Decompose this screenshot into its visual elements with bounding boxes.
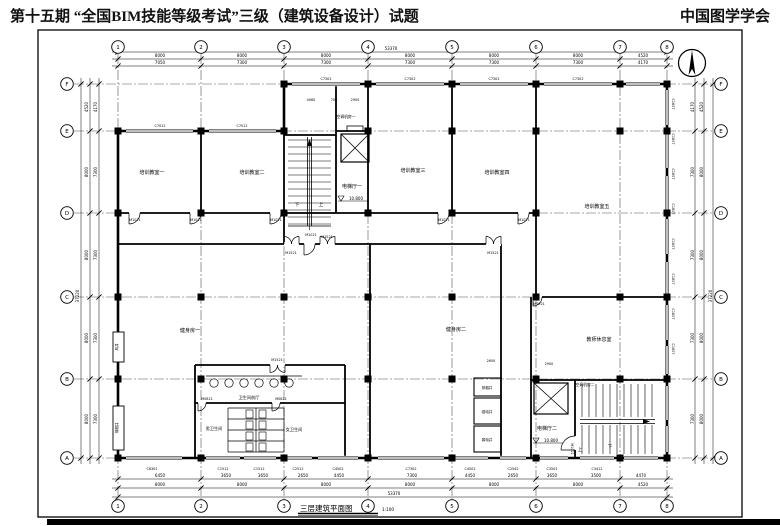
column: [281, 455, 288, 462]
dim-label: 7300: [93, 413, 98, 424]
door-tag: M1521: [487, 251, 499, 255]
dim-interior-label: 2900: [545, 362, 554, 366]
dim-label: 7300: [690, 332, 695, 343]
column: [449, 81, 456, 88]
grid-bubble-label: 5: [450, 504, 454, 510]
toilet-fixture: [259, 432, 266, 440]
window-tag: C1807: [671, 309, 675, 320]
dim-label: 7300: [93, 166, 98, 177]
column: [617, 128, 624, 135]
window-tag: C7302: [321, 77, 332, 81]
window-tag: C7302: [489, 77, 500, 81]
door-tag: M1021: [518, 218, 530, 222]
dim-label: 7300: [690, 249, 695, 260]
column: [115, 210, 122, 217]
column: [281, 128, 288, 135]
dim-label: 7300: [93, 332, 98, 343]
dim-label: 8000: [84, 166, 89, 177]
dim-label: 8000: [405, 53, 416, 58]
room-label: 弱电井: [482, 437, 493, 442]
dim-label: 4170: [638, 60, 649, 65]
room-label: 培训教室五: [584, 203, 609, 210]
grid-bubble-label: 5: [450, 45, 454, 51]
stair-direction-label: 下: [295, 202, 300, 208]
sink: [285, 379, 293, 387]
column: [115, 294, 122, 301]
dim-label: 4520: [699, 101, 704, 112]
dim-label: 8000: [84, 413, 89, 424]
window-tag: C1807: [671, 134, 675, 145]
toilet-fixture: [246, 421, 253, 429]
column: [198, 376, 205, 383]
grid-bubble-label: 3: [282, 504, 286, 510]
door-tag: M1021: [305, 233, 317, 237]
toilet-fixture: [259, 421, 266, 429]
dim-label: 8000: [573, 53, 584, 58]
plan-scale: 1:100: [382, 507, 394, 512]
grid-bubble-label: 1: [116, 45, 120, 51]
column: [617, 81, 624, 88]
column: [533, 128, 540, 135]
dim-label: 7300: [407, 473, 418, 478]
window-tag: C2512: [293, 467, 304, 471]
window-tag: C7302: [406, 467, 417, 471]
toilet-fixture: [246, 432, 253, 440]
dim-label: 7300: [93, 249, 98, 260]
room-label: 健身房二: [446, 326, 466, 333]
dim-label: 8000: [84, 332, 89, 343]
dim-label: 4170: [690, 101, 695, 112]
dim-interior-label: 2900: [351, 98, 360, 102]
floor-plan: 三层建筑平面图 1:100 1122334455667788FFEEDDCCBB…: [0, 0, 780, 526]
dim-label: 7300: [405, 60, 416, 65]
column: [617, 294, 624, 301]
dim-label: 8000: [699, 413, 704, 424]
dim-label: 7300: [237, 60, 248, 65]
dim-label: 6450: [155, 473, 166, 478]
window-tag: C1807: [671, 344, 675, 355]
stair-direction-label: 下: [608, 444, 613, 450]
sink: [210, 379, 218, 387]
door-tag: M0821: [201, 397, 213, 401]
grid-bubble-label: 7: [618, 45, 622, 51]
column: [281, 376, 288, 383]
room-label: 培训教室三: [400, 167, 425, 174]
dim-label: 8000: [321, 53, 332, 58]
column: [449, 455, 456, 462]
grid-bubble-label: E: [719, 129, 723, 135]
door-tag: M1021: [438, 218, 450, 222]
column: [198, 128, 205, 135]
grid-bubble-label: F: [65, 82, 68, 88]
dim-label: 8000: [573, 482, 584, 487]
grid-bubble-label: 2: [199, 45, 203, 51]
column: [365, 455, 372, 462]
sink: [225, 379, 233, 387]
dim-label: 7300: [573, 60, 584, 65]
dim-label: 8000: [405, 482, 416, 487]
column: [533, 294, 540, 301]
grid-bubble-label: C: [65, 295, 69, 301]
door-gap: [272, 401, 280, 405]
room-label: 男卫生间: [206, 425, 223, 432]
room-label: 女卫生间: [286, 426, 303, 433]
dim-label: 7300: [690, 166, 695, 177]
room-label: 健身房一: [180, 327, 200, 334]
column: [365, 294, 372, 301]
column: [664, 376, 671, 383]
room-label: 卫生间前厅: [239, 394, 260, 401]
toilet-fixture: [246, 410, 253, 418]
column: [617, 455, 624, 462]
level-marker-icon: [338, 196, 344, 201]
level-value: 10.800: [544, 438, 558, 443]
door-tag: M1521: [321, 235, 333, 239]
dim-interior-label: 2650: [487, 359, 496, 363]
door-gap: [198, 401, 206, 405]
grid-bubble-label: 8: [665, 504, 669, 510]
column: [198, 455, 205, 462]
door-tag: M1521: [285, 251, 297, 255]
grid-bubble-label: 7: [618, 504, 622, 510]
dim-label: 8000: [699, 166, 704, 177]
grid-bubble-label: D: [719, 211, 723, 217]
dim-label: 4520: [638, 482, 649, 487]
column: [365, 210, 372, 217]
dim-label: 3500: [591, 473, 602, 478]
room-label: 空调机房一: [337, 114, 356, 119]
plan-geometry: 1122334455667788FFEEDDCCBBAA培训教室一培训教室二培训…: [61, 41, 728, 513]
window-tag: C3412: [592, 467, 603, 471]
column: [365, 81, 372, 88]
dim-label: 8000: [321, 482, 332, 487]
window-tag: C1807: [671, 99, 675, 110]
dim-label: 4520: [638, 53, 649, 58]
grid-bubble-label: 8: [665, 45, 669, 51]
column: [281, 81, 288, 88]
window-tag: C6302: [147, 467, 158, 471]
window-tag: C2542: [508, 467, 519, 471]
room-label: 培训教室四: [484, 169, 509, 176]
dim-label: 7050: [155, 60, 166, 65]
dim-total-label: 37220: [75, 289, 80, 302]
column: [664, 128, 671, 135]
grid-bubble-label: 4: [366, 504, 370, 510]
dim-label: 2650: [508, 473, 519, 478]
dim-interior-label: 700: [331, 98, 337, 102]
column: [533, 376, 540, 383]
door-tag: M1521: [271, 358, 283, 362]
room-label: 培训教室二: [239, 169, 264, 176]
window-tag: C7302: [573, 77, 584, 81]
dim-label: 7300: [690, 413, 695, 424]
titleblock-bar: [47, 519, 780, 525]
grid-bubble-label: 6: [534, 504, 538, 510]
door-gap: [438, 211, 449, 215]
door-gap: [270, 211, 281, 215]
column: [115, 376, 122, 383]
level-value: 10.800: [349, 196, 363, 201]
grid-bubble-label: B: [719, 377, 723, 383]
dim-label: 4450: [465, 473, 476, 478]
sheet-frame: [38, 30, 742, 517]
window-tag: C4502: [465, 467, 476, 471]
dim-label: 3650: [547, 473, 558, 478]
dim-label: 7300: [321, 60, 332, 65]
window-tag: C7012: [237, 124, 248, 128]
dim-label: 8000: [237, 482, 248, 487]
column: [281, 210, 288, 217]
stair-direction-label: 上: [578, 446, 583, 453]
dim-interior-label: 4060: [307, 98, 316, 102]
dim-total-label: 53370: [385, 46, 398, 51]
dim-label: 8000: [84, 249, 89, 260]
room-label: 电梯厅二: [537, 425, 557, 432]
column: [449, 376, 456, 383]
column: [198, 294, 205, 301]
column: [449, 294, 456, 301]
window-tag: C1512: [218, 467, 229, 471]
door-tag: M1021: [270, 218, 282, 222]
column: [281, 294, 288, 301]
north-arrow-icon: [679, 50, 706, 77]
drawing-sheet: 第十五期 “全国BIM技能等级考试”三级（建筑设备设计）试题 中国图学学会 三层…: [0, 0, 780, 526]
window-tag: C4502: [333, 467, 344, 471]
column: [365, 376, 372, 383]
dim-label: 8000: [155, 482, 166, 487]
dim-label: 2650: [298, 473, 309, 478]
room-label: 空调机房二: [576, 382, 595, 387]
window-tag: C1512: [254, 467, 265, 471]
window-tag: C1807: [671, 169, 675, 180]
grid-bubble-label: 1: [116, 504, 120, 510]
grid-bubble-label: 6: [534, 45, 538, 51]
column: [617, 376, 624, 383]
room-label: 排烟井: [114, 422, 119, 433]
column: [198, 210, 205, 217]
room-label: 电梯厅一: [342, 183, 362, 190]
column: [115, 128, 122, 135]
window-tag: C1807: [671, 239, 675, 250]
door-tag: M1021: [129, 218, 141, 222]
dim-label: 8000: [155, 53, 166, 58]
room-label: 教师休息室: [586, 336, 611, 343]
stair-direction-label: 上: [319, 201, 324, 208]
dim-label: 4450: [334, 473, 345, 478]
toilet-fixture: [259, 410, 266, 418]
window-tag: C7302: [405, 77, 416, 81]
door-gap: [129, 211, 140, 215]
grid-bubble-label: 2: [199, 504, 203, 510]
dim-label: 4470: [636, 473, 647, 478]
grid-bubble-label: C: [719, 295, 723, 301]
room-label: 排烟井: [482, 385, 493, 390]
dim-total-label: 37220: [708, 289, 713, 302]
dim-label: 8000: [699, 332, 704, 343]
grid-bubble-label: F: [719, 82, 722, 88]
door-gap: [518, 211, 529, 215]
dim-label: 8000: [237, 53, 248, 58]
column: [664, 455, 671, 462]
room-label: 风井: [114, 343, 119, 351]
window-tag: C1807: [671, 274, 675, 285]
window-tag: C7012: [155, 124, 166, 128]
toilet-fixture: [259, 443, 266, 451]
sink: [240, 379, 248, 387]
grid-bubble-label: A: [65, 456, 69, 462]
dim-label: 8000: [699, 249, 704, 260]
column: [664, 210, 671, 217]
dim-label: 8000: [489, 53, 500, 58]
door-tag: M1021: [570, 443, 574, 455]
dim-total-label: 53370: [388, 491, 401, 496]
toilet-fixture: [246, 443, 253, 451]
dim-label: 7300: [489, 60, 500, 65]
column: [533, 81, 540, 88]
window-tag: C1807: [671, 204, 675, 215]
grid-bubble-label: E: [65, 129, 69, 135]
door-tag: M1021: [190, 218, 202, 222]
grid-bubble-label: 4: [366, 45, 370, 51]
door-gap: [304, 242, 315, 246]
plan-title: 三层建筑平面图: [300, 503, 353, 513]
column: [533, 455, 540, 462]
room-label: 强电井: [482, 409, 493, 414]
column: [449, 128, 456, 135]
grid-bubble-label: 3: [282, 45, 286, 51]
grid-bubble-label: A: [719, 456, 723, 462]
dim-label: 4520: [84, 101, 89, 112]
dim-label: 8000: [489, 482, 500, 487]
sink: [270, 379, 278, 387]
grid-bubble-label: B: [65, 377, 69, 383]
dim-label: 3650: [258, 473, 269, 478]
door-tag: M0821: [275, 397, 287, 401]
door-tag: M0921: [533, 302, 545, 306]
column: [533, 210, 540, 217]
column: [664, 294, 671, 301]
grid-bubble-label: D: [65, 211, 69, 217]
window-tag: C3502: [547, 467, 558, 471]
column: [115, 455, 122, 462]
column: [449, 210, 456, 217]
sink: [255, 379, 263, 387]
room-label: 培训教室一: [139, 169, 164, 176]
dim-label: 3650: [221, 473, 232, 478]
column: [664, 81, 671, 88]
dim-label: 4170: [93, 101, 98, 112]
